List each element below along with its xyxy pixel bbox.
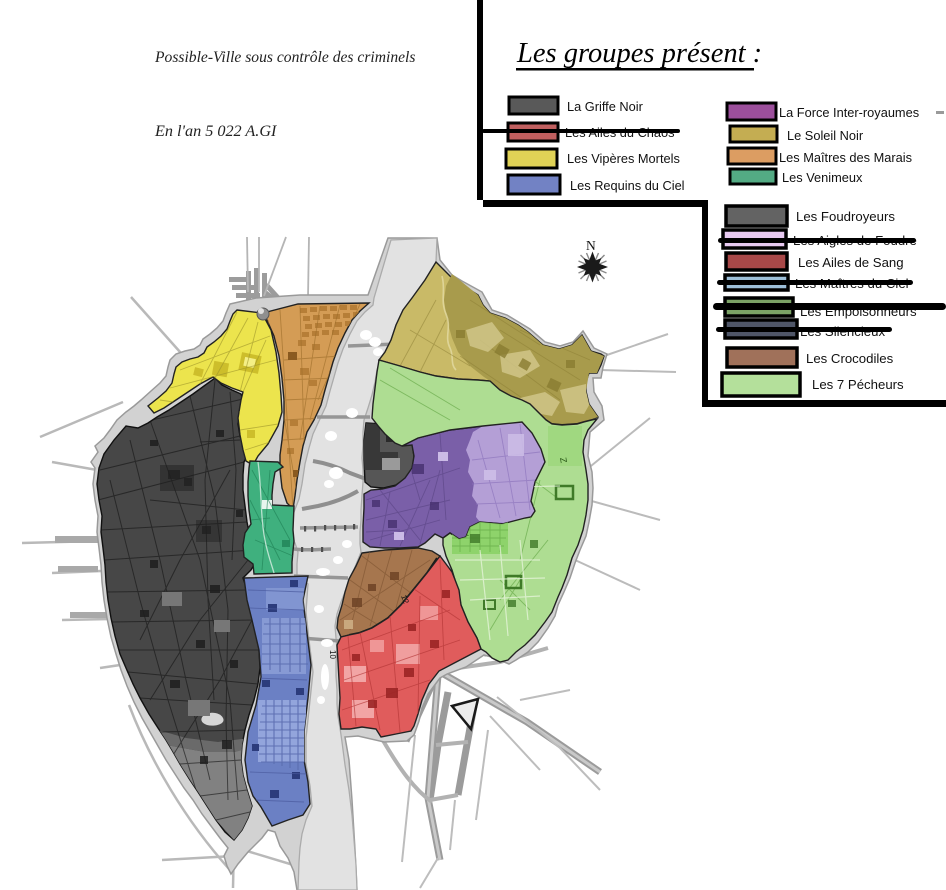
svg-text:Les Crocodiles: Les Crocodiles (806, 351, 894, 366)
svg-text:Possible-Ville sous contrôle d: Possible-Ville sous contrôle des crimine… (154, 49, 415, 66)
svg-text:Les 7 Pécheurs: Les 7 Pécheurs (812, 377, 904, 392)
svg-text:Les Foudroyeurs: Les Foudroyeurs (796, 209, 895, 224)
svg-text:Les Venimeux: Les Venimeux (782, 170, 863, 185)
svg-text:Les groupes présent :: Les groupes présent : (516, 38, 762, 69)
svg-text:Les Ailes de Sang: Les Ailes de Sang (798, 255, 904, 270)
svg-text:La Griffe Noir: La Griffe Noir (567, 99, 644, 114)
svg-text:Les Vipères Mortels: Les Vipères Mortels (567, 151, 680, 166)
svg-text:Les Maîtres des Marais: Les Maîtres des Marais (779, 150, 912, 165)
svg-text:Le Soleil Noir: Le Soleil Noir (787, 128, 864, 143)
svg-text:10: 10 (328, 650, 337, 659)
svg-text:La Force Inter-royaumes: La Force Inter-royaumes (779, 105, 919, 120)
svg-text:En l'an 5 022 A.GI: En l'an 5 022 A.GI (154, 122, 278, 140)
svg-text:Les Requins du Ciel: Les Requins du Ciel (570, 178, 685, 193)
svg-text:N: N (586, 238, 596, 253)
